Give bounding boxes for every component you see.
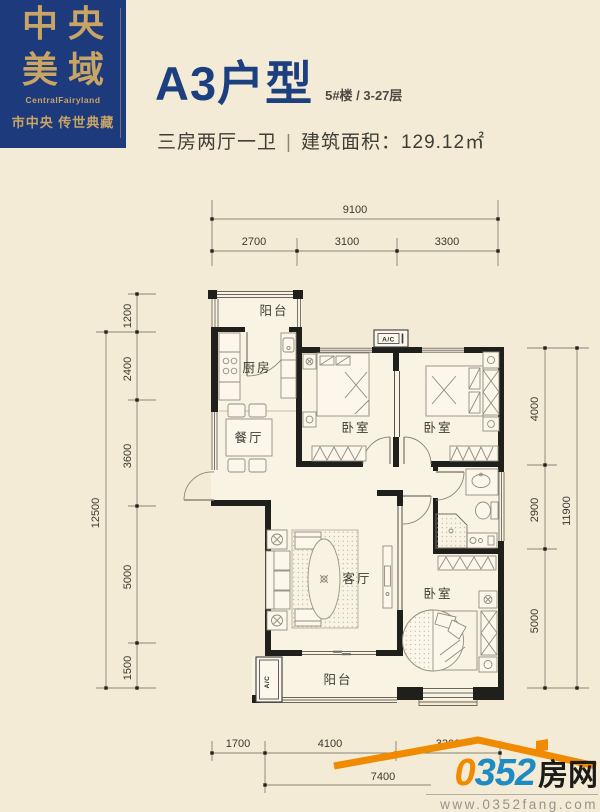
ac-label-bottom: A/C bbox=[264, 676, 271, 689]
dim-left-seg1: 1200 bbox=[122, 304, 134, 328]
floor-info: 5#楼 / 3-27层 bbox=[325, 85, 402, 104]
room-label-bedroom-2: 卧室 bbox=[423, 420, 452, 435]
dim-left-seg5: 1500 bbox=[122, 656, 134, 680]
room-label-bedroom-1: 卧室 bbox=[341, 420, 370, 435]
room-label-kitchen: 厨房 bbox=[242, 360, 271, 375]
room-label-bedroom-3: 卧室 bbox=[423, 586, 452, 601]
dim-right-seg3: 5000 bbox=[529, 609, 541, 633]
dim-right-total: 11900 bbox=[561, 496, 573, 526]
separator: | bbox=[286, 132, 292, 153]
logo-cn: 房网 bbox=[538, 750, 598, 794]
dim-top-seg1: 2700 bbox=[242, 236, 266, 248]
kitchen-counter bbox=[219, 333, 240, 400]
dim-left-seg4: 5000 bbox=[122, 565, 134, 589]
brand-name-line2: 美域 bbox=[0, 48, 126, 92]
site-url: www.0352fang.com bbox=[440, 797, 598, 812]
tv-cabinet bbox=[383, 546, 392, 608]
room-label-balcony-top: 阳台 bbox=[259, 303, 288, 318]
dim-bottom-seg1: 1700 bbox=[226, 738, 250, 750]
dim-top-seg2: 3100 bbox=[335, 236, 359, 248]
room-label-living: 客厅 bbox=[342, 571, 371, 586]
header: A3户型 5#楼 / 3-27层 bbox=[155, 58, 402, 110]
ac-unit-top: A/C bbox=[374, 330, 408, 347]
dim-top-seg3: 3300 bbox=[435, 236, 459, 248]
brand-tagline: 市中央 传世典藏 bbox=[0, 112, 126, 131]
dim-left-total: 12500 bbox=[90, 498, 102, 529]
dimension-ticks-left bbox=[104, 292, 138, 689]
dimension-lines-left bbox=[96, 294, 156, 688]
brand-divider bbox=[120, 8, 121, 138]
dim-top-total: 9100 bbox=[343, 204, 367, 216]
sofa-set bbox=[266, 530, 290, 630]
url-divider bbox=[426, 794, 598, 795]
dim-right-seg2: 2900 bbox=[529, 498, 541, 522]
page-title: A3户型 bbox=[155, 58, 313, 110]
room-label-dining: 餐厅 bbox=[234, 430, 263, 445]
room-label-balcony-bottom: 阳台 bbox=[323, 672, 352, 687]
brand-name-line1: 中央 bbox=[0, 2, 126, 46]
dim-left-seg3: 3600 bbox=[122, 444, 134, 468]
brand-name-english: CentralFairyland bbox=[0, 95, 126, 105]
unit-subtitle: 三房两厅一卫|建筑面积：129.12㎡ bbox=[157, 127, 485, 154]
logo-352: 352 bbox=[475, 752, 535, 795]
site-logo: 0352房网 www.0352fang.com bbox=[330, 736, 598, 810]
unit-area: 建筑面积：129.12㎡ bbox=[301, 132, 485, 153]
logo-zero: 0 bbox=[454, 752, 474, 795]
unit-spec: 三房两厅一卫 bbox=[157, 132, 277, 153]
brand-logo: 中央 美域 CentralFairyland 市中央 传世典藏 bbox=[0, 0, 126, 148]
dim-right-seg1: 4000 bbox=[529, 397, 541, 421]
dim-left-seg2: 2400 bbox=[122, 357, 134, 381]
ac-label-top: A/C bbox=[382, 337, 395, 344]
ac-unit-bottom: A/C bbox=[256, 657, 282, 702]
site-logo-text: 0352房网 bbox=[454, 750, 598, 795]
